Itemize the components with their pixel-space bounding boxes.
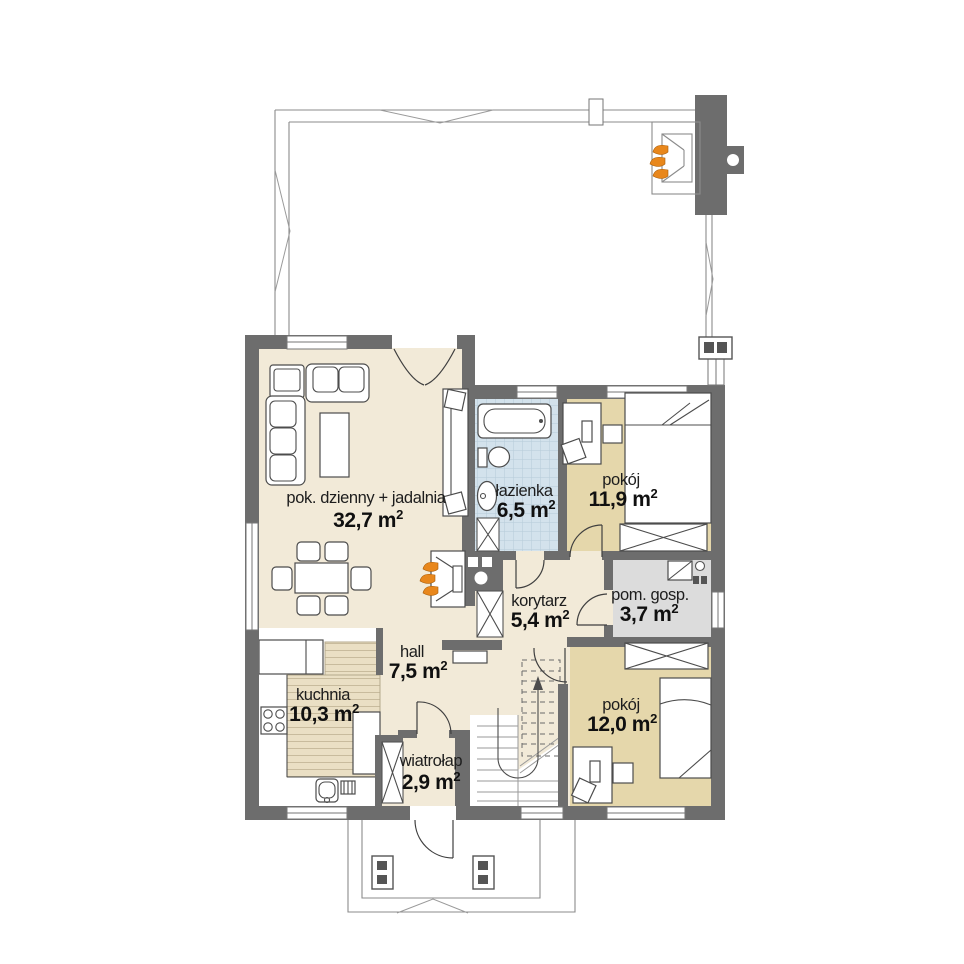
media-wall-unit [443,389,468,516]
bathtub [478,404,551,438]
roof-mark-top [380,110,493,123]
room-label: hall [400,643,424,661]
outdoor-chimney [695,95,744,215]
toilet [478,447,510,467]
porch-column [372,856,393,889]
terrace [275,95,744,337]
flue-icon [696,562,705,571]
entrance-porch [348,820,575,913]
vent-shaft-icon [477,591,503,637]
porch-roof-mark [397,899,468,913]
window [287,336,347,349]
corner-post [699,337,732,359]
window [607,807,685,819]
room-label: łazienka [495,482,554,500]
window [246,523,258,630]
room-area: 11,9 m2 [589,486,658,511]
room-area: 3,7 m2 [620,601,679,626]
dining-chair [325,596,348,615]
room-area: 32,7 m2 [333,507,403,532]
fireplace-body [431,551,465,607]
room-label: wiatrołap [399,752,463,770]
dining-chair [297,542,320,561]
room-area: 5,4 m2 [511,607,570,632]
room-label: kuchnia [296,686,351,704]
speaker-icon [444,389,465,410]
porch-column [473,856,494,889]
speaker-icon [444,492,466,514]
room-area: 10,3 m2 [289,701,359,726]
flue-vent-icon [701,576,707,584]
entry-door [415,820,453,858]
room-area: 7,5 m2 [389,658,448,683]
dining-chair [325,542,348,561]
roof-mark-left [275,170,290,292]
terrace-grill [650,122,700,194]
floor-plan: pok. dzienny + jadalnia 32,7 m2 łazienka… [0,0,964,964]
flue-vent-icon [482,557,492,567]
dining-table [295,563,348,593]
chimney-flue-icon [727,154,739,166]
dining-chair [297,596,320,615]
kitchen-stove [261,707,287,734]
vent-shaft-icon [477,518,499,551]
kitchen-counter-top [259,640,323,674]
window [521,807,563,819]
chimney-core [462,551,503,591]
flue-vent-icon [468,557,478,567]
floor-plan-canvas: pok. dzienny + jadalnia 32,7 m2 łazienka… [0,0,964,964]
kitchen-wood-floor-upper [325,642,380,675]
window [517,386,557,398]
dining-chair [272,567,292,590]
wardrobe [625,643,708,669]
room-area: 2,9 m2 [402,769,461,794]
boiler [668,561,692,580]
room-label: pok. dzienny + jadalnia [286,489,446,507]
window [712,592,724,628]
flue-vent-icon [693,576,699,584]
window [287,807,347,819]
window [708,358,724,385]
room-label: pokój [602,696,639,714]
sofa-two-seat [306,364,369,402]
chimney-flue-icon [475,572,488,585]
terrace-edge-right [706,215,712,337]
room-area: 12,0 m2 [587,711,657,736]
bed [660,678,711,778]
hall-cabinet [453,651,487,663]
coffee-table [320,413,349,477]
washbasin [478,482,497,511]
sofa-three-seat [266,396,305,485]
room-label: korytarz [511,592,567,610]
wardrobe [620,524,707,551]
room-label: pokój [602,471,639,489]
grill-flame-icon [650,145,668,178]
dining-chair [351,567,371,590]
room-area: 6,5 m2 [497,497,556,522]
terrace-post [589,99,603,125]
